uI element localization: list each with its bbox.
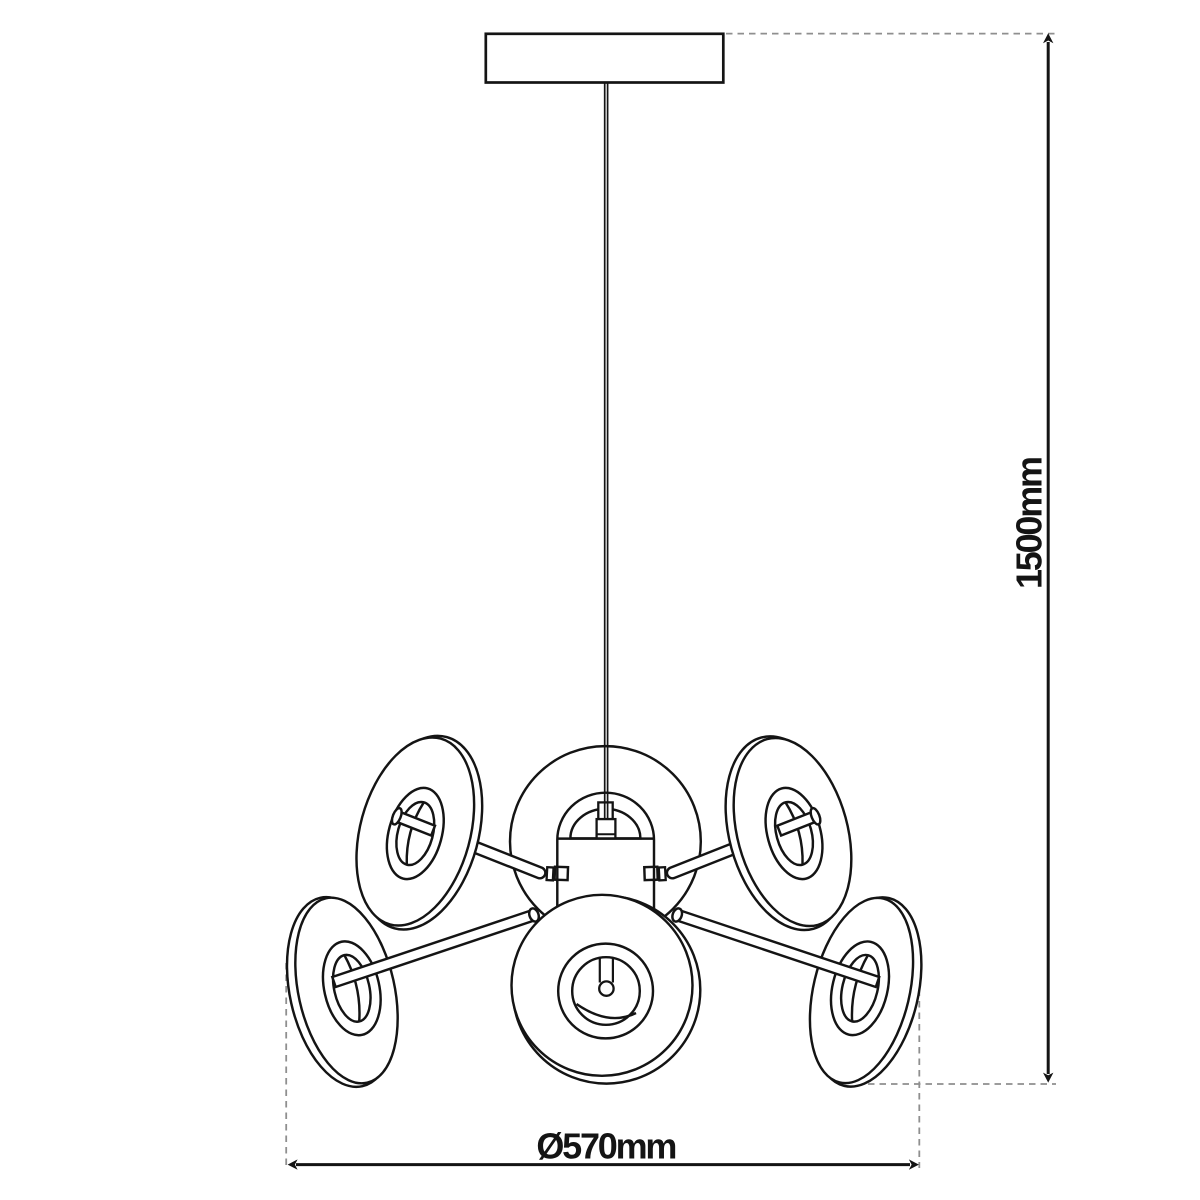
- svg-text:1500mm: 1500mm: [1009, 458, 1050, 589]
- svg-text:Ø570mm: Ø570mm: [536, 1126, 675, 1167]
